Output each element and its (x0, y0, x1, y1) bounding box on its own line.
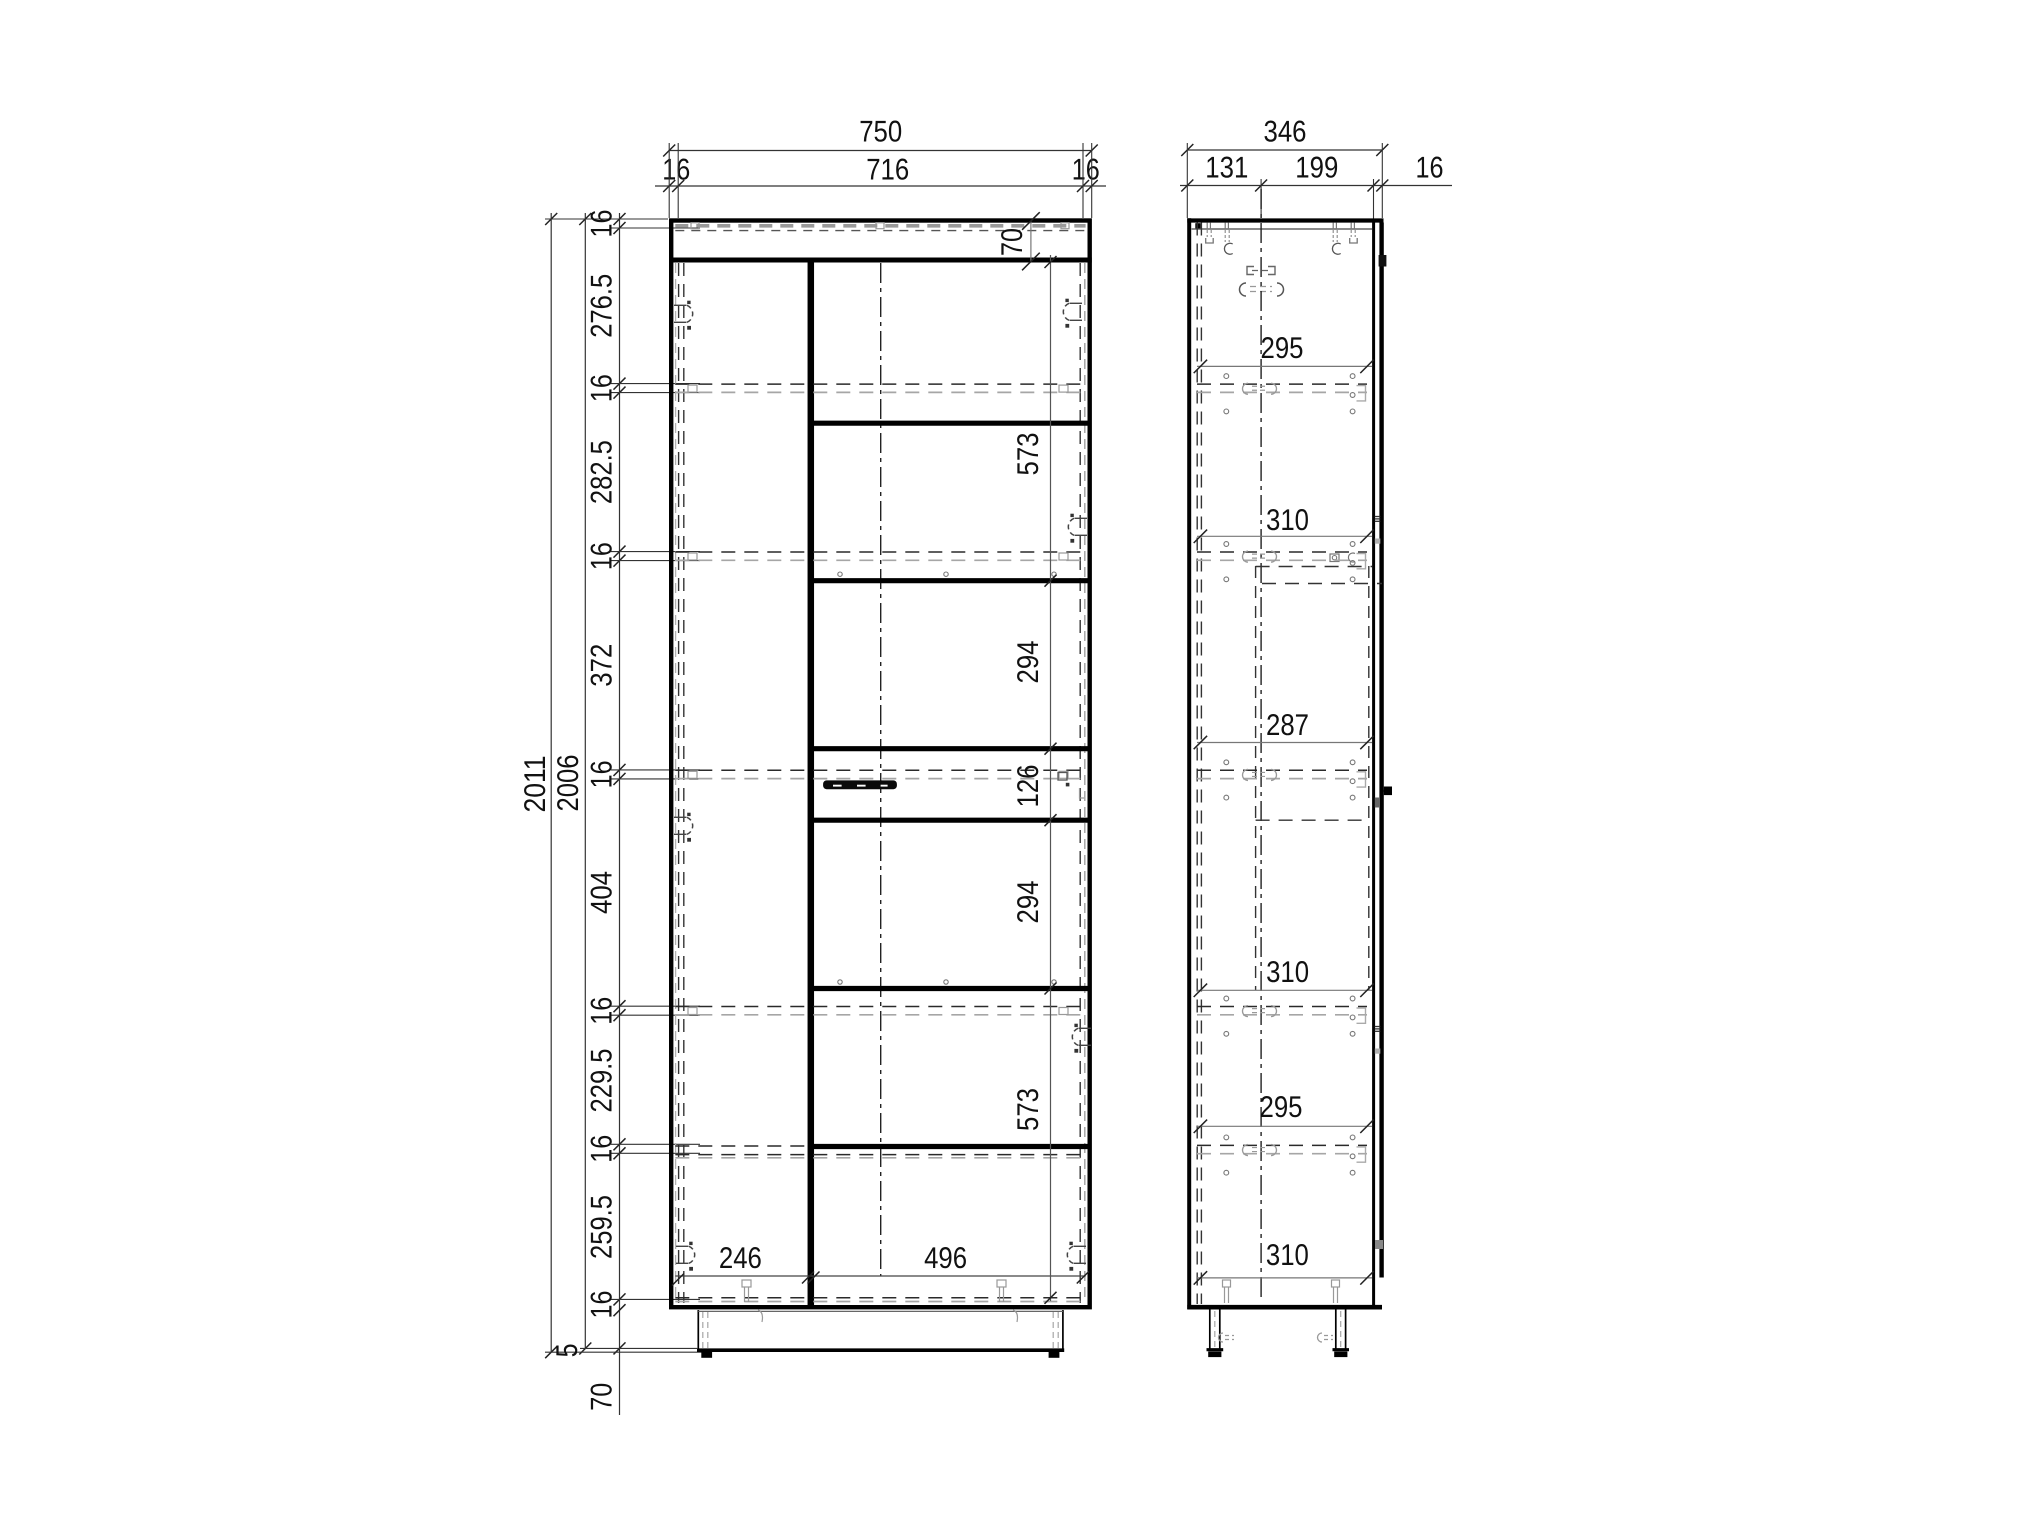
svg-text:294: 294 (1012, 641, 1045, 684)
svg-text:346: 346 (1264, 116, 1307, 149)
svg-text:573: 573 (1012, 1088, 1045, 1131)
svg-text:404: 404 (586, 871, 619, 914)
svg-text:295: 295 (1261, 332, 1304, 365)
svg-text:16: 16 (662, 153, 690, 186)
svg-text:16: 16 (1416, 151, 1444, 184)
svg-text:70: 70 (586, 1383, 619, 1411)
svg-text:294: 294 (1012, 881, 1045, 924)
svg-text:287: 287 (1266, 709, 1309, 742)
svg-text:16: 16 (586, 760, 619, 788)
svg-text:310: 310 (1266, 956, 1309, 989)
svg-text:199: 199 (1295, 151, 1338, 184)
svg-text:70: 70 (996, 228, 1029, 256)
svg-text:750: 750 (859, 115, 902, 148)
svg-text:259.5: 259.5 (586, 1195, 619, 1259)
svg-text:295: 295 (1260, 1091, 1303, 1124)
svg-text:276.5: 276.5 (586, 274, 619, 338)
svg-text:282.5: 282.5 (586, 440, 619, 504)
svg-text:16: 16 (586, 210, 619, 238)
svg-text:16: 16 (586, 1135, 619, 1163)
svg-text:16: 16 (1072, 153, 1100, 186)
svg-text:16: 16 (586, 1291, 619, 1319)
svg-text:310: 310 (1266, 1239, 1309, 1272)
svg-text:310: 310 (1266, 504, 1309, 537)
svg-text:16: 16 (586, 374, 619, 402)
svg-text:496: 496 (924, 1242, 967, 1275)
svg-text:229.5: 229.5 (586, 1049, 619, 1113)
svg-text:246: 246 (719, 1242, 762, 1275)
svg-text:16: 16 (586, 997, 619, 1025)
svg-text:16: 16 (586, 542, 619, 570)
svg-text:5: 5 (551, 1343, 584, 1357)
svg-text:2011: 2011 (519, 756, 552, 813)
svg-text:2006: 2006 (552, 755, 585, 812)
svg-text:716: 716 (866, 153, 909, 186)
svg-text:131: 131 (1205, 151, 1248, 184)
svg-text:126: 126 (1012, 765, 1045, 808)
svg-text:372: 372 (586, 644, 619, 687)
svg-text:573: 573 (1012, 433, 1045, 476)
